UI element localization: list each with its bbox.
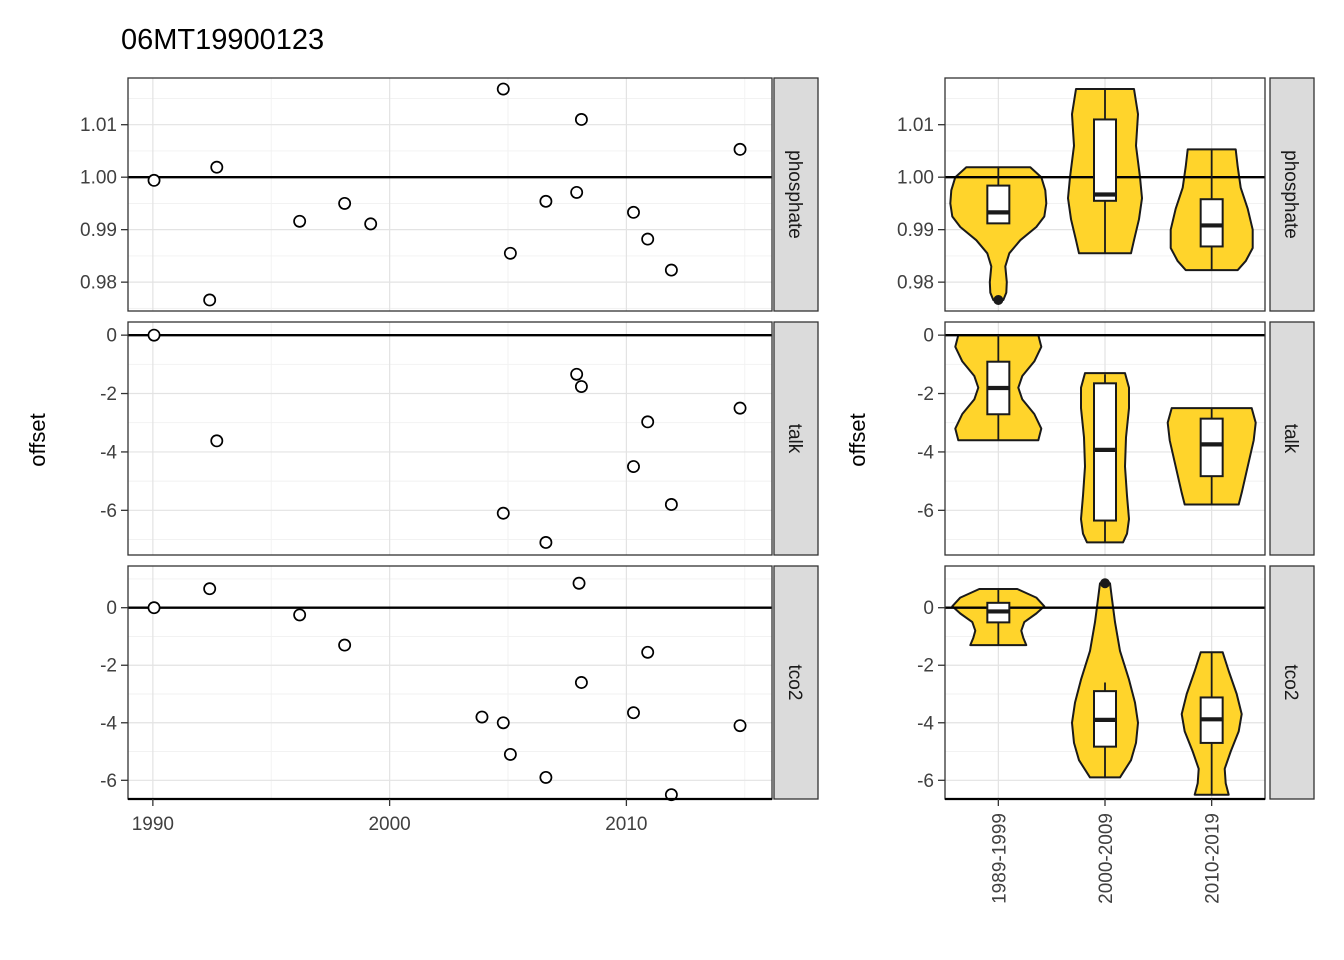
scatter-point [339,198,350,209]
panel-tco2-scatter: tco20-2-4-6 [100,566,818,800]
facet-strip-label: tco2 [1280,665,1301,701]
x-category-label: 2000-2009 [1096,813,1117,904]
scatter-point [642,234,653,245]
y-tick-label: 0.99 [80,220,117,241]
scatter-point [628,207,639,218]
facet-strip-label: tco2 [784,665,805,701]
y-tick-label: 1.00 [897,168,934,189]
panel-background [128,566,772,799]
y-tick-label: -6 [100,771,117,792]
scatter-point [540,537,551,548]
x-category-label: 1989-1999 [989,813,1010,904]
y-tick-label: 0.98 [897,273,934,294]
left-y-axis-title: offset [25,340,51,540]
facet-strip-label: phosphate [784,150,805,239]
scatter-point [365,218,376,229]
scatter-point [642,647,653,658]
scatter-point [642,416,653,427]
scatter-point [294,216,305,227]
y-tick-label: -4 [917,713,934,734]
x-tick-label: 2000 [368,814,410,835]
scatter-point [204,294,215,305]
y-tick-label: 0 [923,598,934,619]
figure: 06MT19900123 offset offset phosphate0.98… [0,0,1344,960]
right-plot: phosphate0.980.991.001.01talk0-2-4-6tco2… [897,78,1314,904]
scatter-point [571,369,582,380]
right-y-axis-title: offset [845,340,871,540]
y-tick-label: -6 [917,771,934,792]
scatter-point [734,144,745,155]
scatter-point [498,717,509,728]
y-tick-label: 0 [106,598,117,619]
scatter-point [498,508,509,519]
scatter-point [211,162,222,173]
outlier-point [993,295,1003,305]
boxplot-box [987,186,1009,224]
scatter-point [211,435,222,446]
scatter-point [339,640,350,651]
y-tick-label: 0.98 [80,273,117,294]
scatter-point [734,403,745,414]
panel-background [128,78,772,311]
scatter-point [666,264,677,275]
scatter-point [505,749,516,760]
y-tick-label: -2 [100,384,117,405]
scatter-point [666,499,677,510]
panel-tco2-violin: tco20-2-4-6 [917,566,1314,799]
y-tick-label: -4 [100,713,117,734]
x-tick-label: 2010 [605,814,647,835]
scatter-point [148,330,159,341]
y-tick-label: 1.01 [897,115,934,136]
scatter-point [576,677,587,688]
scatter-point [628,461,639,472]
y-tick-label: -6 [917,501,934,522]
scatter-point [573,578,584,589]
scatter-point [148,175,159,186]
boxplot-box [1201,199,1223,246]
facet-strip-label: talk [784,424,805,454]
facet-strip-label: talk [1280,424,1301,454]
scatter-point [628,707,639,718]
y-tick-label: 1.00 [80,168,117,189]
chart-canvas: phosphate0.980.991.001.01talk0-2-4-6tco2… [0,0,1344,960]
y-tick-label: 0 [923,326,934,347]
y-tick-label: 1.01 [80,115,117,136]
scatter-point [571,187,582,198]
x-category-label: 2010-2019 [1203,813,1224,904]
scatter-point [540,196,551,207]
panel-phosphate-violin: phosphate0.980.991.001.01 [897,78,1314,311]
scatter-point [476,711,487,722]
scatter-point [204,583,215,594]
plot-title: 06MT19900123 [121,24,324,57]
y-tick-label: -2 [917,656,934,677]
scatter-point [540,772,551,783]
boxplot-box [1094,119,1116,200]
y-tick-label: 0 [106,326,117,347]
facet-strip-label: phosphate [1280,150,1301,239]
boxplot-box [1201,419,1223,477]
x-tick-label: 1990 [132,814,174,835]
panel-phosphate-scatter: phosphate0.980.991.001.01 [80,78,818,311]
left-plot: phosphate0.980.991.001.01talk0-2-4-6tco2… [80,78,818,835]
y-tick-label: -6 [100,501,117,522]
scatter-point [498,83,509,94]
scatter-point [576,381,587,392]
y-tick-label: 0.99 [897,220,934,241]
scatter-point [294,609,305,620]
scatter-point [148,602,159,613]
scatter-point [576,114,587,125]
y-tick-label: -4 [917,442,934,463]
scatter-point [505,248,516,259]
y-tick-label: -2 [917,384,934,405]
y-tick-label: -4 [100,442,117,463]
panel-talk-violin: talk0-2-4-6 [917,322,1314,555]
y-tick-label: -2 [100,656,117,677]
panel-background [128,322,772,555]
scatter-point [734,720,745,731]
panel-talk-scatter: talk0-2-4-6 [100,322,818,555]
outlier-point [1100,578,1110,588]
